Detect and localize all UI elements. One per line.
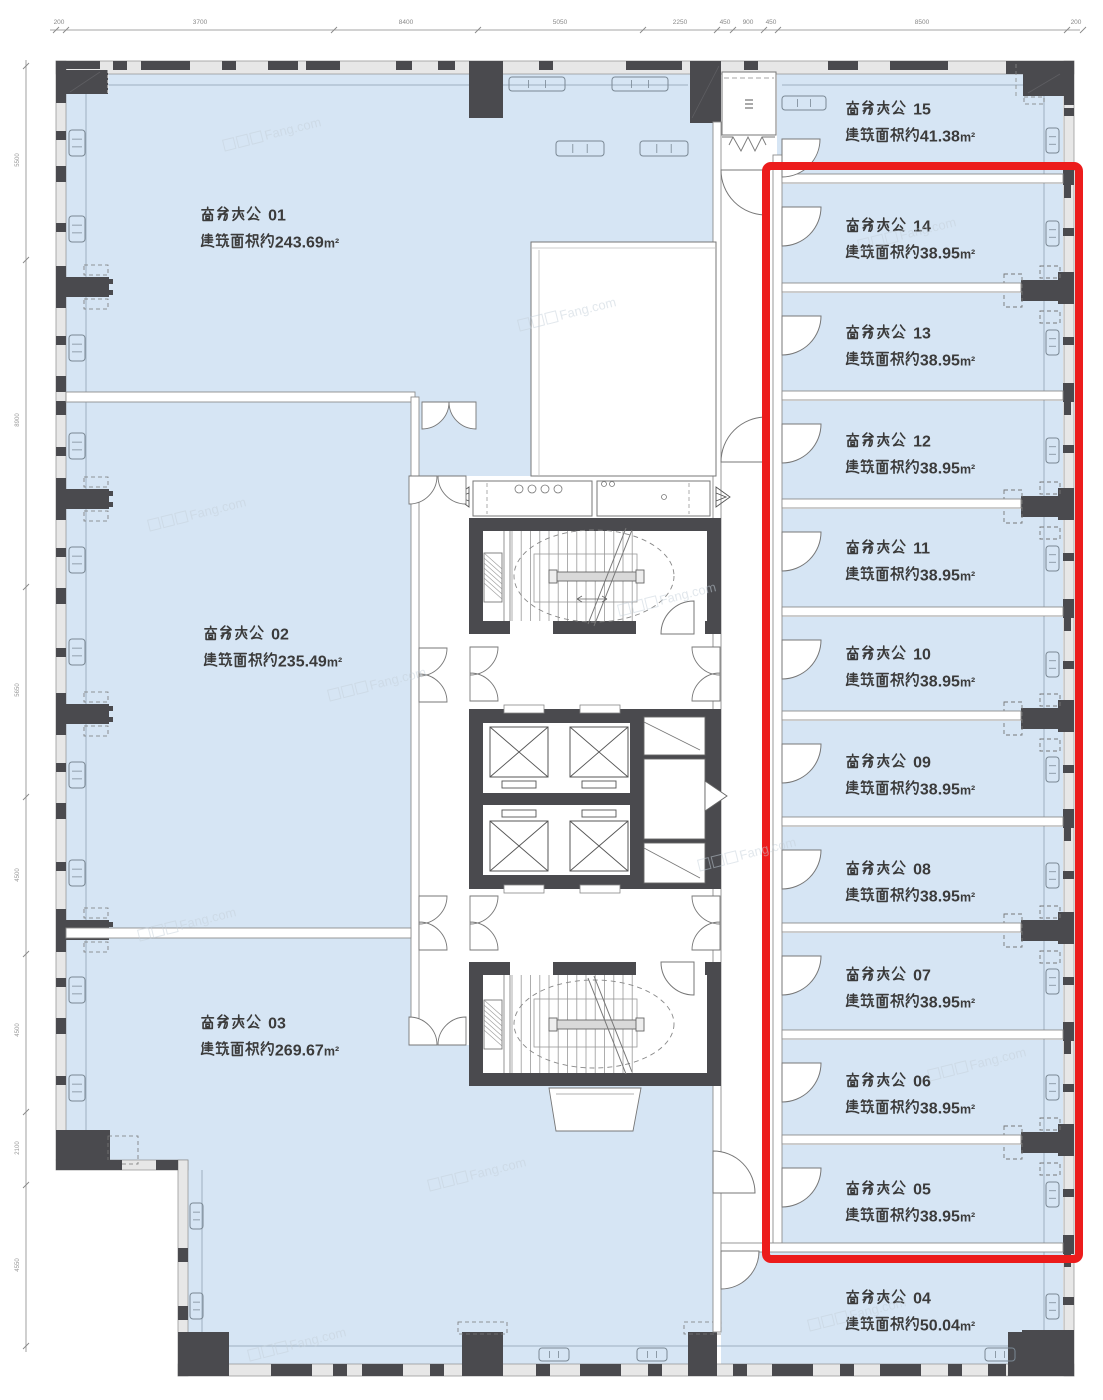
svg-text:03: 03: [268, 1016, 286, 1033]
svg-text:4550: 4550: [15, 1258, 21, 1272]
svg-text:11: 11: [913, 541, 930, 558]
svg-text:3700: 3700: [193, 19, 208, 26]
svg-text:07: 07: [913, 968, 931, 985]
svg-text:243.69m²: 243.69m²: [275, 235, 339, 252]
svg-text:4500: 4500: [15, 868, 21, 882]
svg-text:2100: 2100: [15, 1141, 21, 1155]
svg-text:2250: 2250: [673, 19, 688, 26]
svg-text:38.95m²: 38.95m²: [920, 1209, 975, 1226]
svg-text:900: 900: [743, 19, 754, 26]
svg-text:01: 01: [268, 208, 286, 225]
svg-text:8500: 8500: [915, 19, 930, 26]
svg-text:38.95m²: 38.95m²: [920, 674, 975, 691]
svg-text:04: 04: [913, 1291, 931, 1308]
svg-text:5050: 5050: [553, 19, 568, 26]
svg-text:200: 200: [54, 19, 65, 26]
svg-text:450: 450: [720, 19, 731, 26]
svg-text:269.67m²: 269.67m²: [275, 1043, 339, 1060]
svg-text:38.95m²: 38.95m²: [920, 461, 975, 478]
svg-text:38.95m²: 38.95m²: [920, 246, 975, 263]
svg-text:200: 200: [1071, 19, 1082, 26]
svg-text:450: 450: [766, 19, 777, 26]
svg-text:38.95m²: 38.95m²: [920, 568, 975, 585]
svg-text:4500: 4500: [15, 1023, 21, 1037]
svg-text:09: 09: [913, 755, 931, 772]
svg-text:38.95m²: 38.95m²: [920, 1101, 975, 1118]
svg-text:8900: 8900: [15, 413, 21, 427]
svg-text:06: 06: [913, 1074, 931, 1091]
svg-text:12: 12: [913, 434, 931, 451]
svg-text:10: 10: [913, 647, 931, 664]
svg-text:38.95m²: 38.95m²: [920, 353, 975, 370]
svg-text:235.49m²: 235.49m²: [278, 654, 342, 671]
svg-text:08: 08: [913, 862, 931, 879]
svg-text:41.38m²: 41.38m²: [920, 129, 975, 146]
svg-text:05: 05: [913, 1182, 931, 1199]
svg-text:50.04m²: 50.04m²: [920, 1318, 975, 1335]
svg-text:5500: 5500: [15, 153, 21, 167]
svg-text:15: 15: [913, 102, 931, 119]
svg-text:38.95m²: 38.95m²: [920, 995, 975, 1012]
svg-text:5650: 5650: [15, 683, 21, 697]
svg-text:38.95m²: 38.95m²: [920, 782, 975, 799]
svg-text:38.95m²: 38.95m²: [920, 889, 975, 906]
svg-text:8400: 8400: [399, 19, 414, 26]
svg-text:13: 13: [913, 326, 931, 343]
svg-text:02: 02: [271, 627, 289, 644]
